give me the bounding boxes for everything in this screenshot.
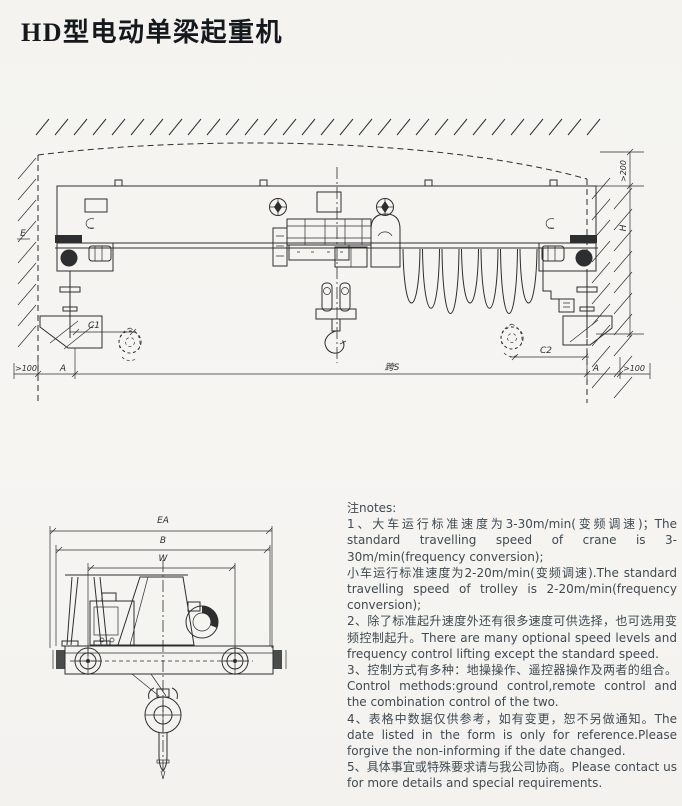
- dim-headroom: >200: [619, 160, 628, 182]
- dim-margin-right: >100: [623, 364, 645, 373]
- wheel-icon: [74, 647, 102, 675]
- ceiling-hatch-icon: [36, 119, 600, 135]
- note-item: 小车运行标准速度为2-20m/min(变频调速).The standard tr…: [347, 565, 677, 614]
- dim-a-left: A: [59, 364, 66, 374]
- girder-top-stubs: [115, 180, 557, 186]
- ceiling-dashed-line: [38, 143, 587, 179]
- lifting-eye-icon: [270, 199, 287, 216]
- girder-outline: [57, 186, 596, 243]
- page-title: HD型电动单梁起重机: [21, 12, 283, 49]
- dim-e-left: E: [20, 229, 26, 239]
- dimension-lines: C1 C2 >100 A 跨S A >100 >200 H E: [14, 149, 650, 379]
- dim-b: B: [160, 536, 166, 546]
- note-item: 2、除了标准起升速度外还有很多速度可供选择，也可选用变频控制起升。There a…: [347, 613, 677, 662]
- note-item: 4、表格中数据仅供参考，如有变更，恕不另做通知。The date listed …: [347, 711, 677, 760]
- note-item: 1、大车运行标准速度为3-30m/min(变频调速)；The standard …: [347, 516, 677, 565]
- trolley-motor-icon: [186, 602, 218, 638]
- end-view-drawing: EA B W: [20, 498, 320, 798]
- hook-block-icon: [316, 283, 356, 353]
- dim-a-right: A: [592, 364, 599, 374]
- dim-height-h: H: [619, 224, 629, 231]
- notes-block: 注notes: 1、大车运行标准速度为3-30m/min(变频调速)；The s…: [347, 500, 677, 792]
- hook-phantom-left: [119, 328, 141, 361]
- note-item: 5、具体事宜或特殊要求请与我公司协商。Please contact us for…: [347, 759, 677, 791]
- girder-section: [62, 575, 194, 646]
- dim-c1: C1: [88, 321, 100, 331]
- main-elevation-drawing: C1 C2 >100 A 跨S A >100 >200 H E: [10, 95, 672, 410]
- end-truck-right: [539, 219, 597, 339]
- dim-ea: EA: [157, 516, 169, 526]
- dim-span: 跨S: [385, 362, 400, 373]
- lifting-eye-icon: [377, 199, 394, 216]
- note-item: 3、控制方式有多种：地操操作、遥控器操作及两者的组合。Control metho…: [347, 662, 677, 711]
- notes-heading: 注notes:: [347, 500, 677, 516]
- catalog-page: HD型电动单梁起重机: [0, 0, 682, 806]
- dim-c2: C2: [540, 346, 552, 356]
- wall-left-hatch-icon: [18, 158, 36, 347]
- nameplate: [85, 199, 107, 212]
- end-view-dimensions: EA B W: [50, 516, 272, 656]
- festoon-cables-icon: [403, 249, 537, 314]
- hook-phantom-right: [501, 324, 523, 357]
- dim-w: W: [159, 554, 169, 564]
- hoist-section: [90, 593, 134, 645]
- end-truck-left: [55, 219, 113, 339]
- hook-assembly-icon: [132, 560, 181, 779]
- electric-hoist-trolley: [273, 214, 400, 267]
- dim-margin-left: >100: [15, 364, 37, 373]
- wheel-icon: [221, 647, 249, 675]
